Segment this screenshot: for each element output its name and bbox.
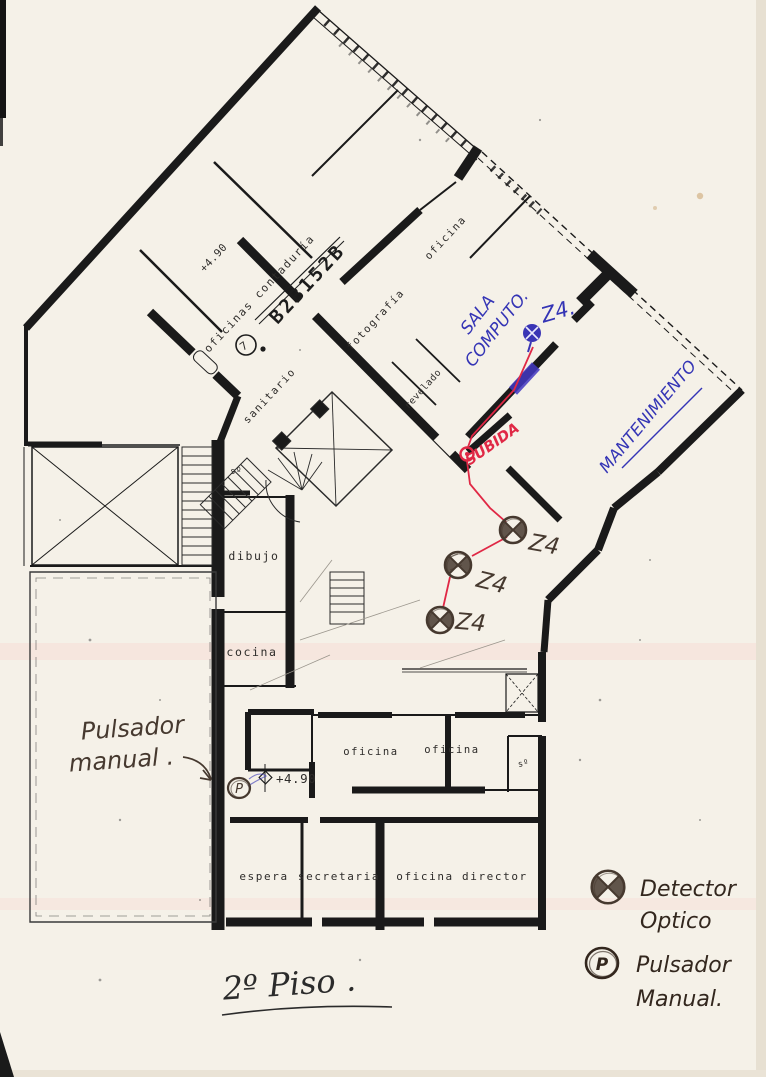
scan-edge-mark bbox=[0, 0, 6, 118]
legend-pulsador-line1: Pulsador bbox=[636, 953, 733, 978]
svg-text:+4.90: +4.90 bbox=[276, 771, 316, 786]
room-label-secretaria: secretaria bbox=[298, 870, 380, 883]
room-label-espera: espera bbox=[239, 870, 288, 883]
scanned-floor-plan: oficinas contaduría B2B152B +4.90 7 ofic… bbox=[0, 0, 766, 1077]
room-label-s-upper: sº bbox=[230, 467, 242, 477]
room-label-director: oficina director bbox=[396, 870, 528, 883]
room-label-oficina-left: oficina bbox=[343, 746, 398, 758]
legend-detector-line2: Optico bbox=[640, 909, 712, 934]
scan-band bbox=[0, 643, 766, 660]
legend-pulsador-line2: Manual. bbox=[636, 987, 723, 1012]
room-label-oficina-right: oficina bbox=[424, 744, 479, 756]
svg-text:P: P bbox=[235, 782, 243, 797]
room-label-cocina: cocina bbox=[226, 645, 277, 659]
legend-detector-line1: Detector bbox=[640, 877, 738, 902]
zone-label-3: Z4 bbox=[453, 609, 487, 638]
floor-plan-svg: oficinas contaduría B2B152B +4.90 7 ofic… bbox=[0, 0, 766, 1077]
svg-text:P: P bbox=[596, 955, 609, 975]
room-label-dibujo: dibujo bbox=[228, 549, 279, 563]
zone-label-1: Z4 bbox=[526, 529, 561, 560]
